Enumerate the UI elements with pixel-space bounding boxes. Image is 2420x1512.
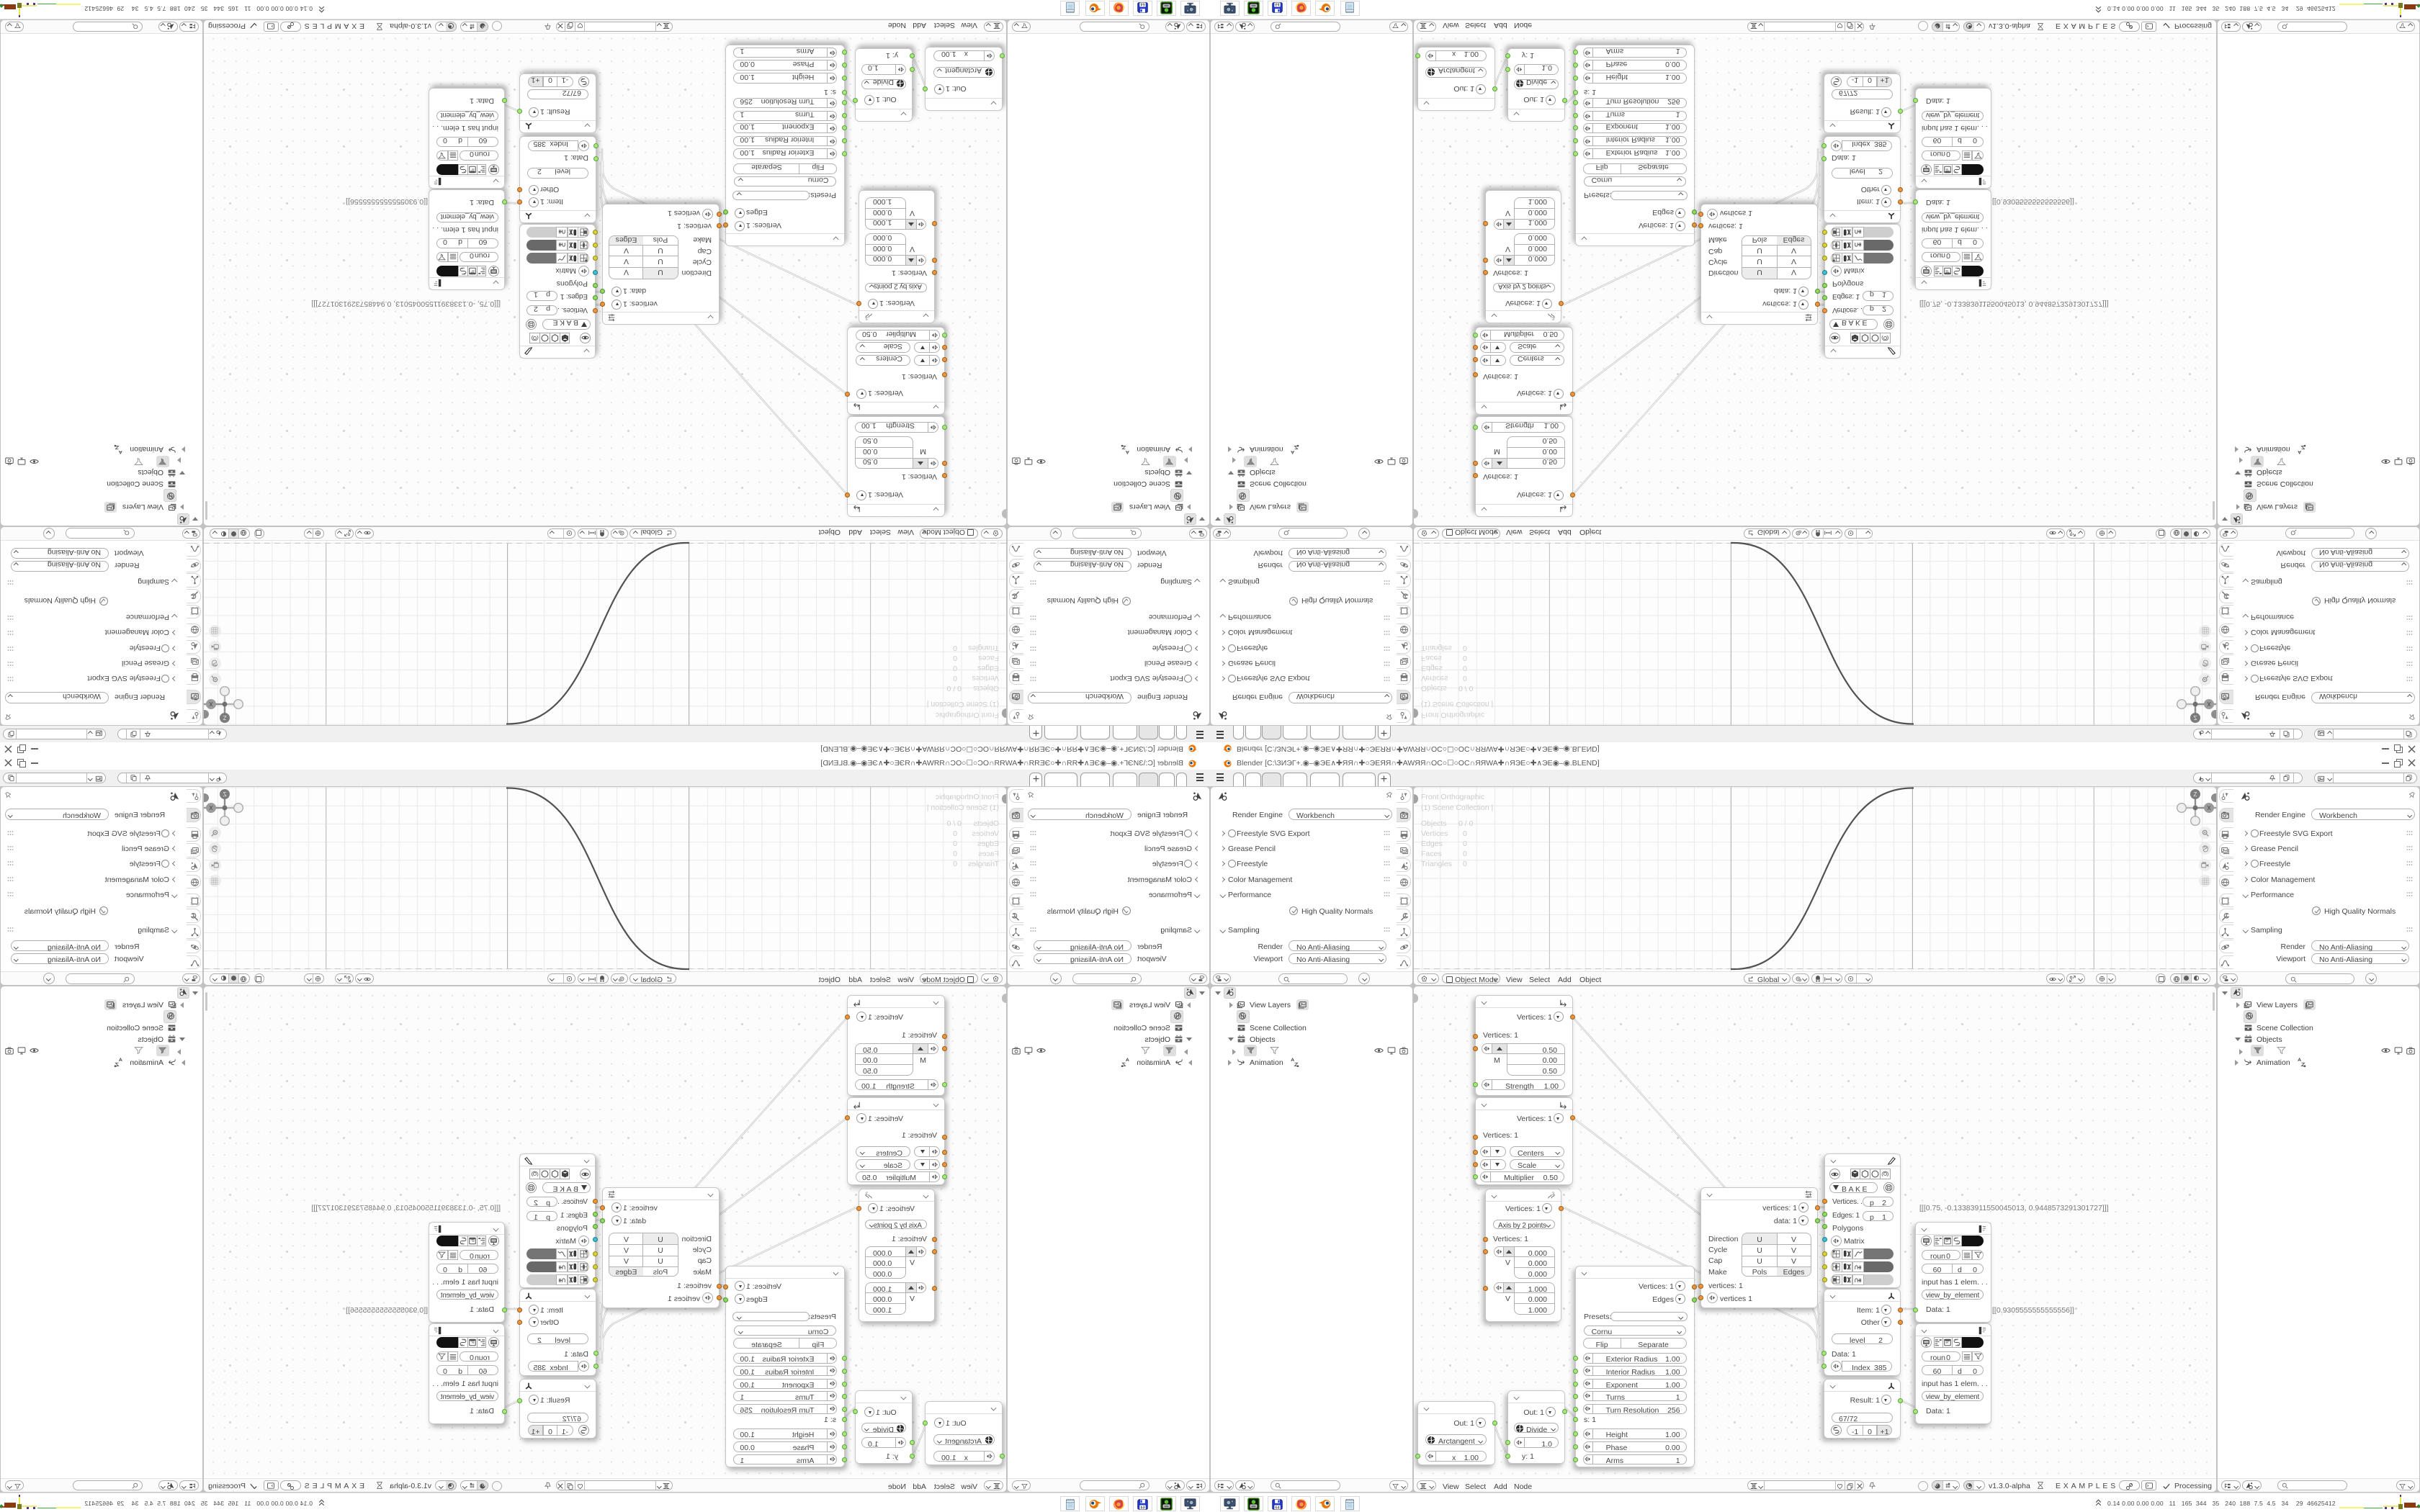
svg-text:X: X: [209, 805, 213, 811]
svg-text:Z: Z: [223, 715, 226, 721]
svg-text:64: 64: [1140, 1506, 1144, 1510]
svg-text:3: 3: [1552, 1192, 1555, 1197]
svg-text:Z: Z: [2194, 715, 2197, 721]
svg-text:64: 64: [1140, 2, 1144, 6]
svg-text:64: 64: [1275, 1506, 1279, 1510]
svg-text:3: 3: [865, 315, 868, 320]
svg-text:3: 3: [865, 1192, 868, 1197]
svg-text:Z: Z: [223, 791, 226, 798]
svg-text:X: X: [2207, 701, 2211, 708]
svg-text:3: 3: [1552, 315, 1555, 320]
svg-text:64: 64: [1275, 2, 1279, 6]
svg-text:X: X: [209, 701, 213, 708]
svg-text:X: X: [2207, 805, 2211, 811]
svg-text:Z: Z: [2194, 791, 2197, 798]
